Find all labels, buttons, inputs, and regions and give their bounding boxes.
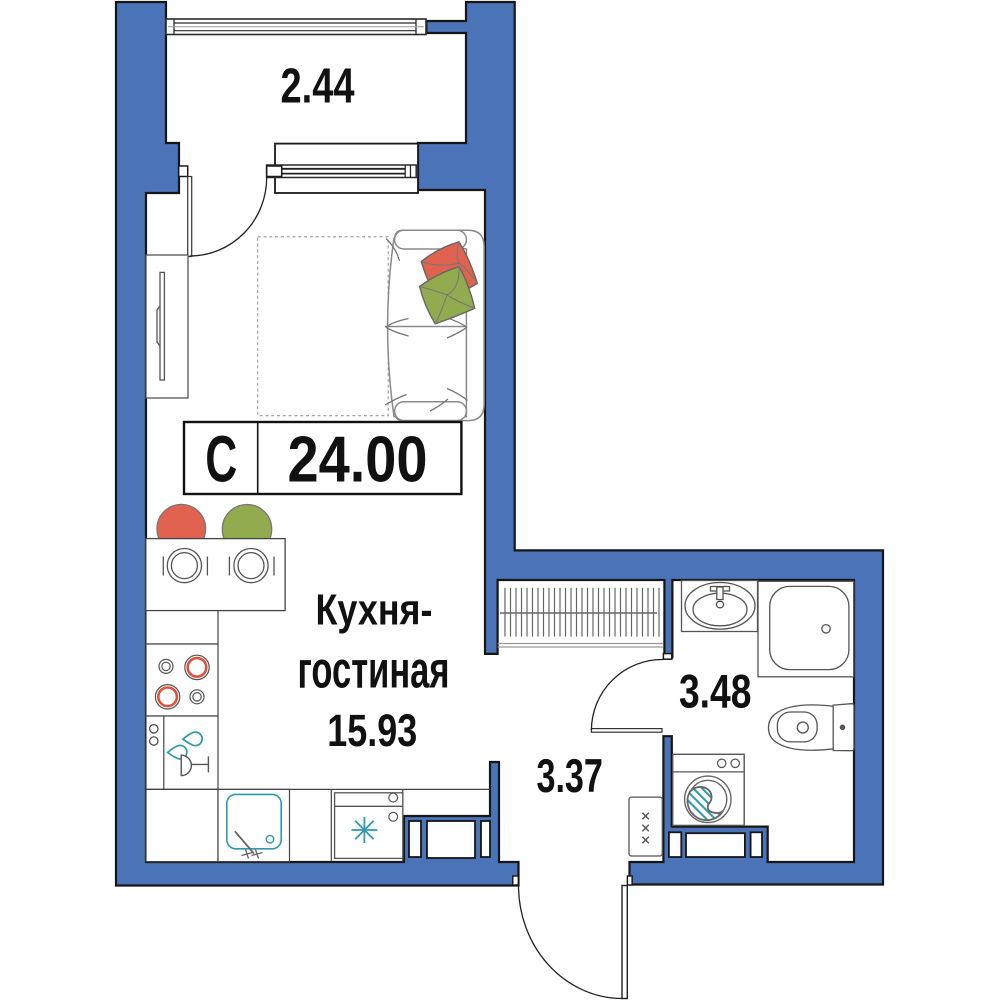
svg-text:гостиная: гостиная (298, 641, 450, 699)
svg-text:3.37: 3.37 (536, 750, 603, 803)
svg-text:С: С (205, 421, 237, 495)
svg-text:15.93: 15.93 (327, 705, 417, 756)
svg-text:2.44: 2.44 (281, 59, 355, 113)
svg-text:24.00: 24.00 (288, 422, 428, 495)
svg-text:Кухня-: Кухня- (316, 586, 433, 635)
svg-text:3.48: 3.48 (679, 666, 752, 719)
